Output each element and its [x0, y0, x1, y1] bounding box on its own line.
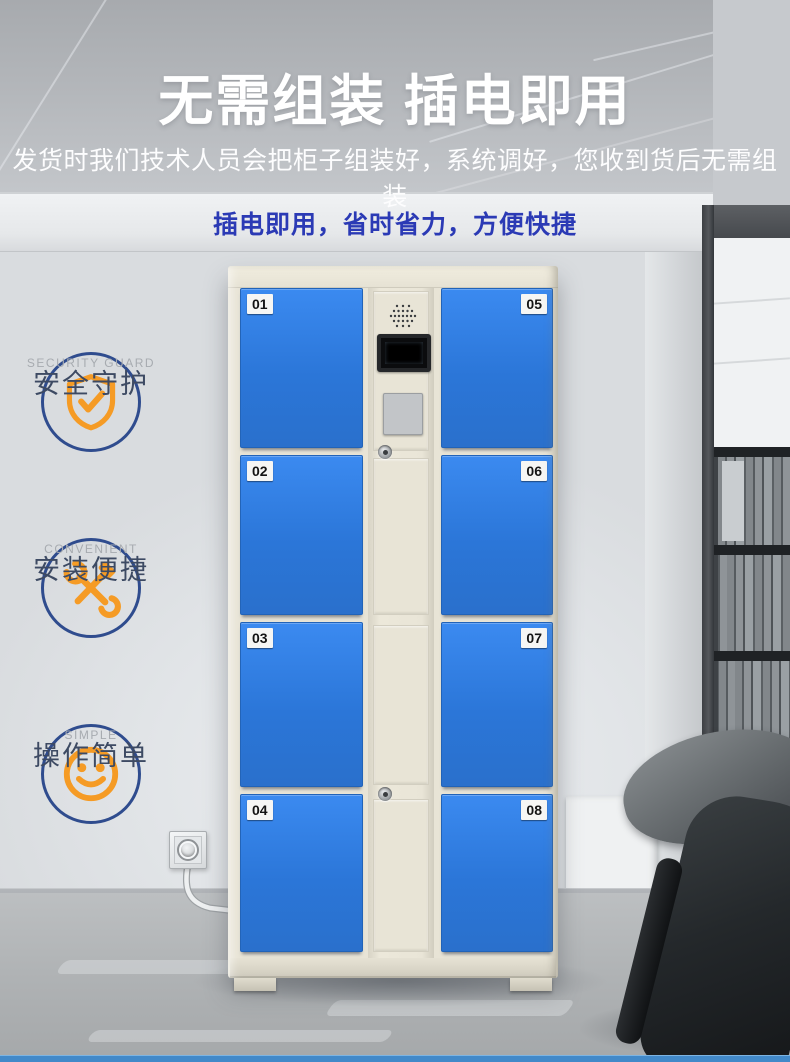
- door-number-label: 01: [247, 294, 273, 314]
- feature-caption: CONVENIENT: [44, 542, 138, 556]
- cabinet-top-bar: [228, 266, 558, 288]
- locker-door-03: 03: [240, 622, 363, 787]
- product-banner: 无需组装 插电即用 发货时我们技术人员会把柜子组装好，系统调好，您收到货后无需组…: [0, 0, 790, 1062]
- cabinet-foot-right: [510, 978, 552, 991]
- door-number-label: 06: [521, 461, 547, 481]
- door-number-label: 03: [247, 628, 273, 648]
- subtitle-text: 发货时我们技术人员会把柜子组装好，系统调好，您收到货后无需组装: [0, 141, 790, 213]
- locker-door-05: 05: [441, 288, 553, 448]
- door-number-label: 05: [521, 294, 547, 314]
- tagline-text: 插电即用，省时省力，方便快捷: [0, 205, 790, 241]
- screen-panel: [385, 342, 423, 364]
- speaker-grille-icon: [385, 302, 421, 332]
- lock-keyhole-lower: [378, 787, 392, 801]
- power-plug: [181, 843, 195, 857]
- feature-caption: SECURITY GUARD: [27, 356, 155, 370]
- bottom-accent-strip: [0, 1055, 790, 1062]
- door-number-label: 04: [247, 800, 273, 820]
- floor-streak: [86, 1030, 394, 1042]
- keypad: [383, 393, 423, 435]
- door-number-label: 07: [521, 628, 547, 648]
- column-panel: [373, 458, 429, 615]
- locker-door-01: 01: [240, 288, 363, 448]
- door-number-label: 08: [521, 800, 547, 820]
- shelf-board: [714, 447, 790, 457]
- binder-row: [718, 555, 790, 651]
- page-title: 无需组装 插电即用: [0, 56, 790, 136]
- shelf-board: [714, 651, 790, 661]
- wall-socket: [169, 831, 207, 869]
- locker-door-07: 07: [441, 622, 553, 787]
- door-number-label: 02: [247, 461, 273, 481]
- smart-locker-cabinet: 01 02 03 04 05 06 07 08: [228, 266, 558, 990]
- display-screen: [377, 334, 431, 372]
- cabinet-base: [230, 958, 556, 978]
- locker-door-02: 02: [240, 455, 363, 615]
- locker-door-06: 06: [441, 455, 553, 615]
- cabinet-foot-left: [234, 978, 276, 991]
- white-binder: [722, 461, 744, 541]
- column-panel: [373, 625, 429, 785]
- column-panel: [373, 799, 429, 952]
- feature-caption: SIMPLE: [64, 728, 117, 742]
- lock-keyhole-upper: [378, 445, 392, 459]
- locker-door-04: 04: [240, 794, 363, 952]
- locker-door-08: 08: [441, 794, 553, 952]
- interior-room: [713, 238, 790, 450]
- shelf-board: [714, 545, 790, 555]
